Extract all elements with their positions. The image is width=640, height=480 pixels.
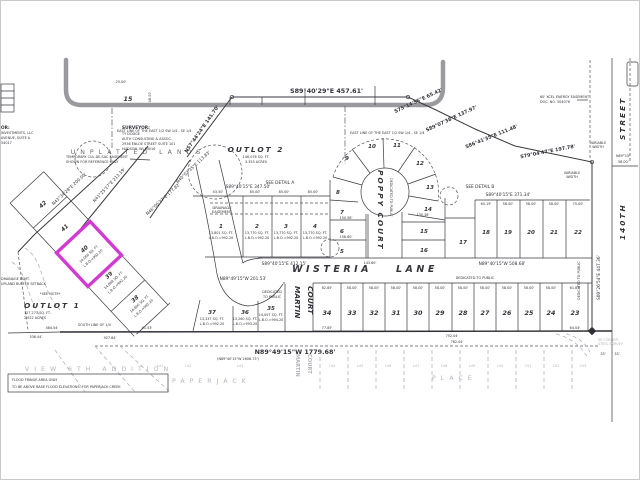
lot-number: 17 — [459, 240, 467, 246]
street-name-140th-street: STREET — [618, 97, 627, 140]
ghost-lot-number: 142 — [185, 364, 191, 368]
outlot-acres: 2.922 ACRES — [24, 316, 46, 320]
note-line: EASEMENT — [212, 210, 233, 214]
lot-lbo: L.B.O.=992.20 — [209, 236, 234, 240]
note-line: DRAINAGE ESMT. — [1, 277, 30, 281]
south-line-note: SOUTH LINE OF 1/4 — [78, 323, 111, 327]
bearing-label: N89°49'15"W 201.53' — [220, 276, 267, 282]
dim-label: 150.58' — [340, 216, 353, 220]
lot-number: 28 — [459, 309, 468, 317]
bearing-label: S89°40'15"E 347.50' — [226, 184, 271, 190]
street-name-poppy-court: POPPY COURT — [376, 170, 385, 251]
dim-label: 58.00' — [413, 286, 424, 290]
lot-number: 29 — [436, 309, 445, 317]
dim-label: 58.00' — [369, 286, 380, 290]
bearing-label: N89°33' — [616, 154, 630, 158]
dim-label: 58.00' — [549, 202, 560, 206]
dim-label: 58.00' — [435, 286, 446, 290]
dim-label: 58.00' — [524, 286, 535, 290]
bearing-label: S89°40'15"E 371.34' — [486, 192, 531, 198]
dim-label: 85.00' — [250, 190, 261, 194]
ghost-lot-number: 144 — [329, 364, 335, 368]
lot-lbo: L.B.O.=992.20 — [303, 236, 328, 240]
ghost-lot-number: 146 — [385, 364, 391, 368]
lot-number: 27 — [481, 309, 490, 317]
bearing-label: S89°40'15"E 412.15' — [262, 261, 307, 267]
lot-number: 13 — [426, 185, 434, 191]
dim-label: 58.00' — [347, 286, 358, 290]
surveyor-line: 2936 ENLOE STREET SUITE 101 — [122, 142, 175, 146]
note-line: EAST LINE OF THE EAST 1/2 SW 1/4 - SE 1/… — [117, 129, 192, 133]
dim-label: 25.00' — [116, 80, 127, 84]
dim-label: 158.60' — [340, 235, 353, 239]
ghost-lot-number: 148 — [441, 364, 447, 368]
lot-area: 13,770 SQ. FT. — [274, 231, 299, 235]
ghost-creek-name: PAPERJACK — [172, 378, 251, 385]
ghost-street-place: PLACE — [432, 375, 477, 382]
bearing-label: S89°40'29"E 457.61' — [290, 87, 363, 95]
dim-label: 77.85' — [322, 326, 333, 330]
adjacent-lot-number: 15 — [124, 95, 133, 103]
lot-number: 25 — [525, 309, 534, 317]
lot-area: 13,337 SQ. FT. — [200, 317, 225, 321]
lot-area: 13,770 SQ. FT. — [245, 231, 270, 235]
flood-note-line: FLOOD FRINGE AREA ONLY — [12, 378, 58, 382]
ghost-lot-number: 152 — [553, 364, 559, 368]
ghost-street-martin: MARTIN — [294, 354, 300, 377]
lot-number: 11 — [393, 143, 401, 149]
outlot-name: OUTLOT 2 — [228, 145, 285, 154]
lot-number: 34 — [323, 309, 332, 317]
dim-label: 752.04' — [446, 334, 459, 338]
dim-label: 58.00' — [503, 202, 514, 206]
dim-label: 58.00' — [618, 160, 629, 164]
lot-lbo: L.B.O.=992.20 — [274, 236, 299, 240]
lot-number: 33 — [348, 309, 357, 317]
lot-number: 26 — [503, 309, 512, 317]
lot-area: 14,057 SQ. FT. — [259, 313, 284, 317]
dim-label: 60.19' — [481, 202, 492, 206]
lot-number: 18 — [482, 230, 490, 236]
dim-label: 536.44' — [30, 335, 43, 339]
lot-area: 13,770 SQ. FT. — [303, 231, 328, 235]
dim-label: 143.60' — [364, 261, 377, 265]
dim-label: 33' — [614, 352, 619, 356]
dim-label: 85.00' — [308, 190, 319, 194]
dim-label: 58.00' — [546, 286, 557, 290]
ghost-lot-number: 151 — [525, 364, 531, 368]
ghost-lot-number: 145 — [357, 364, 363, 368]
lot-lbo: L.B.O.=994.20 — [259, 318, 284, 322]
owner-line: INVESTMENTS, LLC — [1, 131, 34, 135]
bearing-label: (N89°40'15"W 2608.73') — [217, 357, 259, 361]
street-name-martin: MARTIN — [293, 286, 302, 319]
note-line: WIDTH — [566, 175, 578, 179]
outlot-acres: 3.353 ACRES — [245, 160, 267, 164]
ghost-lot-number: 153 — [580, 364, 586, 368]
outlot-area: 127,271 SQ. FT. — [24, 311, 51, 315]
lot-number: 24 — [547, 309, 556, 317]
lot-number: 20 — [527, 230, 535, 236]
dim-label: 484.54' — [46, 326, 59, 330]
dim-label: 43.50' — [213, 190, 224, 194]
lot-number: 2 — [255, 224, 259, 230]
dedicated-label: DEDICATED — [262, 290, 282, 294]
lot-number: 35 — [267, 306, 275, 312]
dim-label: 64.04' — [570, 326, 581, 330]
lot-number: 8 — [336, 190, 340, 196]
lot-number: 3 — [284, 224, 288, 230]
lot-number: 4 — [313, 224, 317, 230]
ghost-lot-number: 150 — [497, 364, 503, 368]
street-name-martin-court: COURT — [306, 286, 315, 315]
lot-number: 1 — [219, 224, 223, 230]
dim-label: 58.00' — [391, 286, 402, 290]
dim-label: 782.04' — [451, 340, 464, 344]
outlot-name: OUTLOT 1 — [24, 301, 81, 310]
ghost-lot-number: 149 — [469, 364, 475, 368]
surveyor-line: AUTH CONSULTING & ASSOC. — [122, 137, 172, 141]
dim-label: 58.00' — [480, 286, 491, 290]
lot-number: 22 — [574, 230, 582, 236]
owner-line: AVENUE, SUITE A — [1, 136, 31, 140]
see-note-label: *SEE NOTE* — [40, 292, 61, 296]
owner-line: 54017 — [1, 141, 12, 145]
lot-number: 19 — [504, 230, 512, 236]
ghost-street-court: COURT — [306, 354, 312, 374]
ghost-plat-name: VIEW 6TH ADDITION — [25, 366, 173, 373]
plat-drawing: 25.00' 48.00' 15 OR: INVESTMENTS, LLC AV… — [0, 0, 640, 480]
dedicated-label: TO PUBLIC — [262, 295, 282, 299]
lot-area: 13,801 SQ. FT. — [209, 231, 234, 235]
ghost-lot-number: 143 — [237, 364, 243, 368]
outlot-area: 146,076 SQ. FT. — [243, 155, 270, 159]
note-line: EAST LINE OF THE EAST 1/2 SW 1/4 - SE 1/… — [350, 131, 425, 135]
see-detail-a-label: SEE DETAIL A — [266, 180, 295, 186]
lot-number: 5 — [340, 249, 344, 255]
plat-map-scan: 25.00' 48.00' 15 OR: INVESTMENTS, LLC AV… — [0, 0, 640, 480]
dim-label: 85.00' — [279, 190, 290, 194]
see-detail-b-label: SEE DETAIL B — [466, 184, 495, 190]
dim-label: 62.85' — [322, 286, 333, 290]
lot-number: 21 — [550, 230, 558, 236]
bearing-label: N89°40'15"W 508.68' — [479, 261, 526, 267]
dim-label: 75.00' — [573, 202, 584, 206]
lot-number: 9 — [345, 156, 349, 162]
dim-label: 41.53' — [142, 326, 153, 330]
ghost-lot-number: 147 — [413, 364, 419, 368]
lot-lbo: L.B.O.=992.20 — [245, 236, 270, 240]
dedicated-to-public-label: DEDICATED TO PUBLIC — [577, 261, 581, 300]
dedicated-to-public-label: DEDICATED TO PUBLIC — [389, 178, 393, 217]
lot-number: 23 — [571, 309, 580, 317]
dim-label: 58.00' — [502, 286, 513, 290]
lot-number: 12 — [416, 161, 424, 167]
lot-number: 31 — [392, 309, 401, 317]
dim-label: 927.64' — [104, 336, 117, 340]
dim-label: 48.00' — [148, 92, 152, 103]
lot-lbo: L.B.O.=993.20 — [233, 322, 258, 326]
lot-number: 15 — [420, 229, 428, 235]
lot-number: 16 — [420, 248, 428, 254]
dedicated-to-public-label: DEDICATED TO PUBLIC — [456, 276, 495, 280]
note-line: DOC. NO. 504076 — [540, 100, 570, 104]
dim-label: 58.00' — [526, 202, 537, 206]
corner-note: STEEL SURVEY — [598, 342, 624, 346]
lot-area: 13,260 SQ. FT. — [233, 317, 258, 321]
street-name-lane: LANE — [396, 264, 438, 275]
dim-label: 58.00' — [458, 286, 469, 290]
flood-note-line: TO BE ABOVE BASE FLOOD ELEVATIONS. FOR P… — [11, 385, 121, 389]
lot-number: 10 — [368, 144, 376, 150]
lot-number: 36 — [241, 310, 249, 316]
dim-label: 130.38' — [417, 213, 430, 217]
lot-number: 37 — [208, 310, 216, 316]
note-line: WIDTH — [592, 145, 604, 149]
street-name-140th: 140TH — [618, 203, 627, 240]
bearing-label: S00°26'54"E 447.36' — [596, 255, 602, 300]
lot-number: 30 — [414, 309, 423, 317]
scan-frame — [1, 1, 640, 480]
lot-lbo: L.B.O.=992.20 — [200, 322, 225, 326]
note-line: 60' XCEL ENERGY EASEMENT — [540, 95, 590, 99]
dim-label: 33' — [600, 352, 605, 356]
note-line: UPLAND BUFFER SETBACK — [1, 282, 47, 286]
lot-number: 32 — [370, 309, 379, 317]
